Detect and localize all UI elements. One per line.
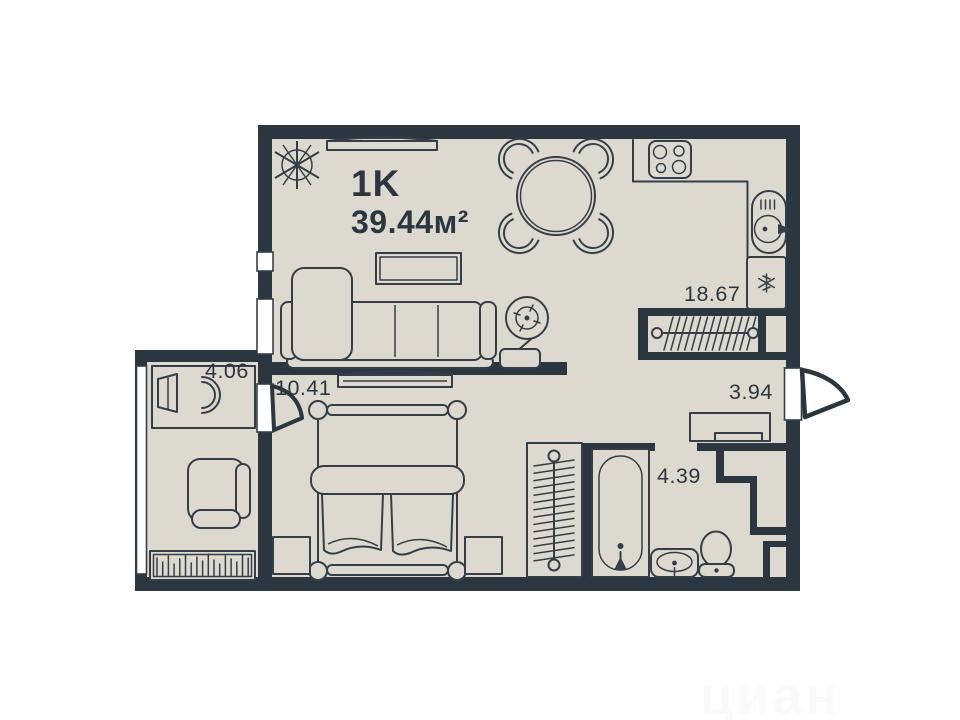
four-burner-stove-icon <box>649 141 691 178</box>
bookshelf <box>150 551 255 580</box>
apartment-type-label: 1K <box>351 163 400 204</box>
wall-closet-divider <box>758 308 766 360</box>
room-area-loggia: 4.06 <box>205 359 249 383</box>
bed-post <box>309 562 327 580</box>
tv-console <box>376 253 461 284</box>
dining-table <box>517 157 595 235</box>
armchair <box>188 459 250 528</box>
wall-loggia-top <box>135 350 272 362</box>
wall-step-3 <box>750 476 757 533</box>
wall-hall-bottom <box>697 443 786 451</box>
room-area-hallway: 3.94 <box>729 380 773 404</box>
living-window-pane-1 <box>257 252 273 271</box>
floor-plan-page: 1K 39.44м² 18.67 10.41 4.06 3.94 4.39 ци… <box>0 0 960 720</box>
shoe-bench-drawer <box>715 433 762 441</box>
snowflake-icon <box>747 257 786 309</box>
bed-post <box>448 562 466 580</box>
wall-closet-left <box>638 308 648 360</box>
nightstand-left <box>273 537 310 574</box>
living-window-pane-2 <box>257 299 273 354</box>
double-bed <box>309 401 466 580</box>
bathtub-icon <box>592 449 649 577</box>
room-area-bedroom: 10.41 <box>275 376 331 400</box>
bed-headrail <box>327 405 448 415</box>
nightstand-right <box>465 537 502 574</box>
monitor-icon <box>158 374 177 412</box>
sofa-chaise-cushion <box>292 268 352 360</box>
wall-shaft-left <box>763 541 770 577</box>
bed-post <box>309 401 327 419</box>
watermark: циан <box>700 666 841 720</box>
room-area-kitchen-living: 18.67 <box>684 282 740 306</box>
toilet-icon <box>699 532 734 578</box>
corridor-wardrobe <box>527 443 582 577</box>
oval-basin-icon <box>651 549 698 577</box>
bed-footrail <box>327 565 448 575</box>
wall-step-2 <box>716 476 751 483</box>
entrance-door-leaf <box>802 370 848 417</box>
room-area-bathroom: 4.39 <box>657 464 701 488</box>
bed-post <box>448 401 466 419</box>
floor-plan-svg: 1K 39.44м² 18.67 10.41 4.06 3.94 4.39 ци… <box>0 0 960 720</box>
sofa-armrest-right <box>480 302 496 359</box>
total-area-label: 39.44м² <box>351 204 469 240</box>
wall-step-4 <box>750 527 786 535</box>
wall-top <box>258 125 800 139</box>
blanket-fold <box>311 466 464 494</box>
loggia-window <box>137 366 147 574</box>
entrance-door-opening <box>785 368 802 420</box>
wall-right <box>786 125 800 591</box>
